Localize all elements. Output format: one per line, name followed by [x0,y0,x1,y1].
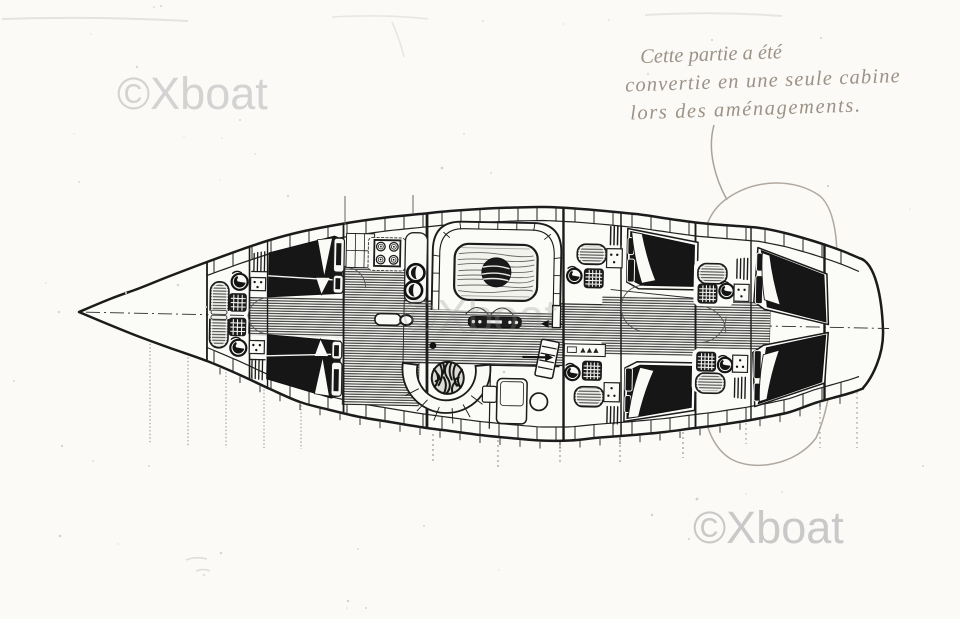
svg-text:©Xboat: ©Xboat [403,290,557,342]
svg-text:©Xboat: ©Xboat [693,502,844,553]
svg-text:©Xboat: ©Xboat [117,68,268,119]
